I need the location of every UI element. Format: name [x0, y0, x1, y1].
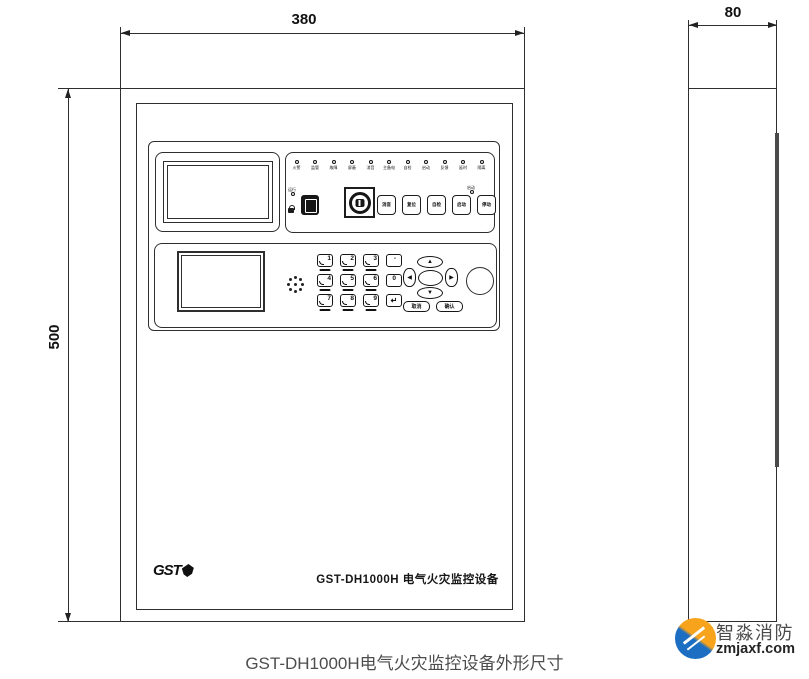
indicator-led: 隔离: [473, 160, 490, 170]
panel-port-icon: [301, 195, 319, 215]
dim-380-line: [120, 33, 525, 34]
gst-logo-text: GST: [153, 562, 181, 579]
key-3: 3: [363, 254, 379, 267]
arrow-left-key: ◀: [403, 268, 416, 287]
indicator-led: 自检: [399, 160, 416, 170]
led-label: 屏蔽: [348, 166, 356, 170]
led-label: 监管: [311, 166, 319, 170]
key-switch: [344, 187, 375, 218]
led-label: 消音: [367, 166, 375, 170]
arrow-up-icon: ▲: [427, 259, 433, 265]
key-glyph: [319, 281, 324, 285]
status-display-screen: [167, 165, 269, 219]
key-dash: -: [386, 254, 402, 267]
arrow-down-icon: ▼: [427, 290, 433, 296]
cabinet-side-view: [688, 88, 777, 622]
key-sublabel: [366, 309, 377, 312]
cancel-key-label: 取消: [411, 303, 421, 310]
led-icon: [424, 160, 428, 164]
dim-80-line: [688, 25, 777, 26]
led-icon: [313, 160, 317, 164]
key-sublabel: [320, 289, 331, 292]
panel-button-label: 消音: [382, 203, 391, 208]
run-led-icon: [291, 192, 295, 196]
arrow-down-key: ▼: [417, 287, 443, 299]
arrow-right-icon: ▶: [449, 274, 454, 281]
key-digit: 7: [327, 295, 331, 302]
indicator-led: 反馈: [436, 160, 453, 170]
indicator-led: 主备电: [381, 160, 398, 170]
key-digit: 2: [350, 255, 354, 262]
indicator-led: 火警: [288, 160, 305, 170]
dim-80-ext-right: [776, 20, 777, 88]
key-sublabel: [343, 269, 354, 272]
button-led-icon: [470, 190, 474, 194]
led-label: 隔离: [478, 166, 486, 170]
dim-380-label: 380: [288, 11, 320, 28]
dim-380-arrow-left: [121, 30, 130, 36]
key-glyph: [365, 261, 370, 265]
key-sublabel: [343, 309, 354, 312]
dimension-drawing: 380 500 80 火警 监管 故障 屏蔽 消音 主备电 自检 启动 反馈 延…: [0, 0, 809, 679]
key-5: 5: [340, 274, 356, 287]
gst-logo-icon: [182, 564, 194, 577]
dim-80-label: 80: [721, 4, 745, 21]
device-name-plate: GST-DH1000H 电气火灾监控设备: [305, 571, 510, 587]
cancel-key: 取消: [403, 301, 430, 312]
key-digit: 9: [373, 295, 377, 302]
led-icon: [480, 160, 484, 164]
watermark-site: zmjaxf.com: [716, 641, 795, 657]
nav-center-key: [418, 270, 443, 286]
dim-80-ext-left: [688, 20, 689, 88]
indicator-led: 延时: [455, 160, 472, 170]
panel-button-label: 启动: [457, 203, 466, 208]
led-label: 故障: [330, 166, 338, 170]
key-sublabel: [343, 289, 354, 292]
key-digit: 3: [373, 255, 377, 262]
key-digit: 6: [373, 275, 377, 282]
led-icon: [443, 160, 447, 164]
key-4: 4: [317, 274, 333, 287]
indicator-led: 启动: [418, 160, 435, 170]
dim-500-arrow-bottom: [65, 613, 71, 622]
status-display-frame: [163, 161, 273, 223]
key-6: 6: [363, 274, 379, 287]
panel-button-mute: 消音: [377, 195, 396, 215]
key-1: 1: [317, 254, 333, 267]
indicator-led: 屏蔽: [344, 160, 361, 170]
key-9: 9: [363, 294, 379, 307]
arrow-left-icon: ◀: [407, 274, 412, 281]
led-icon: [332, 160, 336, 164]
key-sublabel: [320, 269, 331, 272]
key-8: 8: [340, 294, 356, 307]
key-sublabel: [366, 289, 377, 292]
key-digit: 1: [327, 255, 331, 262]
led-label: 自检: [404, 166, 412, 170]
led-icon: [406, 160, 410, 164]
arrow-right-key: ▶: [445, 268, 458, 287]
enter-icon: ↵: [391, 296, 398, 305]
indicator-led: 故障: [325, 160, 342, 170]
key-0: 0: [386, 274, 402, 287]
arrow-up-key: ▲: [417, 256, 443, 268]
lcd-frame: [177, 251, 265, 312]
key-digit: 5: [350, 275, 354, 282]
key-digit: 4: [327, 275, 331, 282]
led-icon: [387, 160, 391, 164]
dim-500-label: 500: [42, 318, 68, 356]
key-glyph: [365, 281, 370, 285]
key-glyph: [342, 261, 347, 265]
panel-button-selftest: 自检: [427, 195, 446, 215]
key-enter: ↵: [386, 294, 402, 307]
confirm-key: 确认: [436, 301, 463, 312]
speaker-icon: [294, 283, 297, 286]
led-icon: [369, 160, 373, 164]
confirm-key-label: 确认: [444, 303, 454, 310]
dim-500-line: [68, 88, 69, 622]
dim-380-ext-right: [524, 27, 525, 88]
lock-icon: [288, 208, 294, 213]
led-label: 反馈: [441, 166, 449, 170]
led-icon: [350, 160, 354, 164]
led-label: 火警: [293, 166, 301, 170]
panel-button-stop: 停动: [477, 195, 496, 215]
dim-80-arrow-right: [768, 22, 777, 28]
panel-button-reset: 复位: [402, 195, 421, 215]
key-digit: -: [394, 255, 396, 262]
led-label: 启动: [422, 166, 430, 170]
led-icon: [461, 160, 465, 164]
gst-logo: GST: [153, 562, 194, 579]
key-sublabel: [320, 309, 331, 312]
key-glyph: [319, 261, 324, 265]
key-glyph: [342, 281, 347, 285]
key-glyph: [342, 301, 347, 305]
panel-button-start: 启动: [452, 195, 471, 215]
panel-button-label: 复位: [407, 203, 416, 208]
indicator-led: 监管: [307, 160, 324, 170]
dim-380-arrow-right: [515, 30, 524, 36]
nav-cluster: ▲ ◀ ▶ ▼ 取消 确认: [403, 254, 459, 314]
keyhole-icon: [355, 199, 364, 207]
key-digit: 8: [350, 295, 354, 302]
numeric-keypad: 1 2 3 - 4 5 6 0 7 8 9 ↵: [317, 254, 405, 316]
led-icon: [295, 160, 299, 164]
led-label: 主备电: [383, 166, 395, 170]
dim-80-arrow-left: [689, 22, 698, 28]
indicator-led-row: 火警 监管 故障 屏蔽 消音 主备电 自检 启动 反馈 延时 隔离: [288, 160, 490, 170]
indicator-led: 消音: [362, 160, 379, 170]
side-door-edge: [775, 133, 779, 467]
panel-button-label: 停动: [482, 203, 491, 208]
buzzer-circle: [466, 267, 494, 295]
key-digit: 0: [392, 275, 396, 282]
key-glyph: [319, 301, 324, 305]
dim-500-arrow-top: [65, 89, 71, 98]
dim-380-ext-left: [120, 27, 121, 88]
key-7: 7: [317, 294, 333, 307]
key-glyph: [365, 301, 370, 305]
key-2: 2: [340, 254, 356, 267]
led-label: 延时: [459, 166, 467, 170]
watermark-logo-icon: [675, 618, 716, 659]
panel-button-label: 自检: [432, 203, 441, 208]
lcd-screen: [181, 255, 261, 308]
key-sublabel: [366, 269, 377, 272]
